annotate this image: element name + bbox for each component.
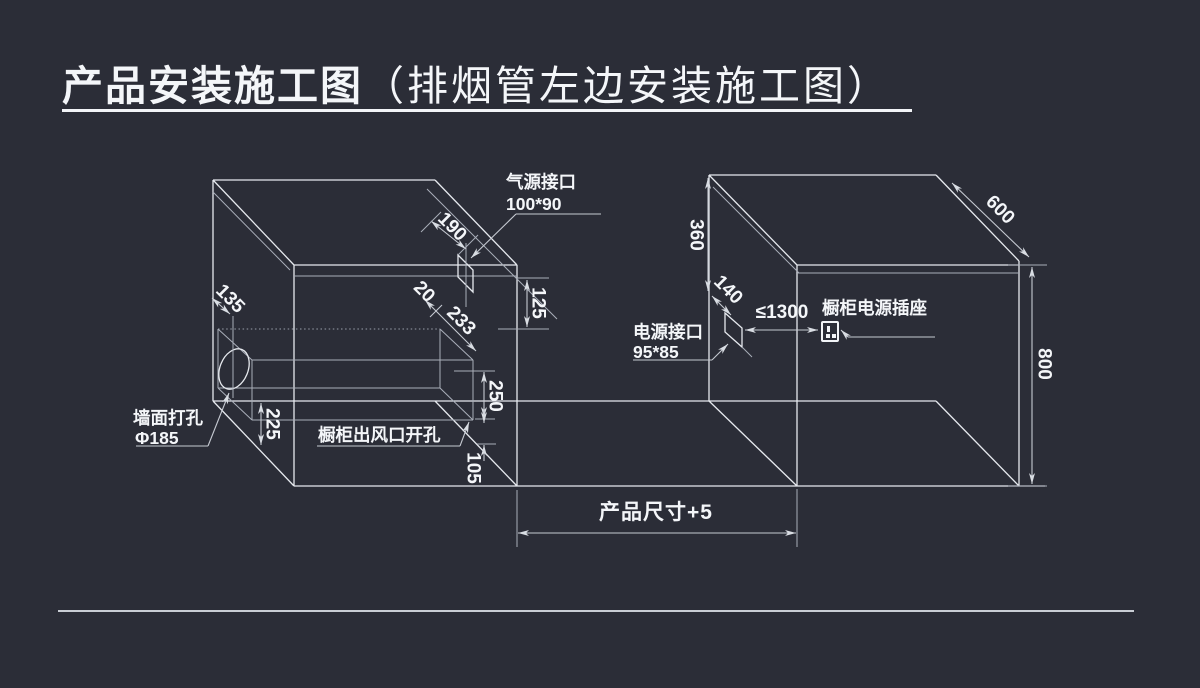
svg-text:20: 20 [409, 277, 439, 307]
svg-text:墙面打孔: 墙面打孔 [133, 408, 203, 428]
dim-225: 225 [261, 403, 283, 445]
right-cabinet-inner-edges [713, 187, 1019, 273]
power-cutout-shape [725, 313, 742, 347]
svg-text:Φ185: Φ185 [135, 428, 179, 448]
svg-text:800: 800 [1034, 348, 1055, 380]
power-socket-icon [822, 322, 838, 341]
power-interface-label: 电源接口 95*85 [633, 322, 728, 362]
svg-text:250: 250 [485, 380, 506, 412]
svg-text:橱柜出风口开孔: 橱柜出风口开孔 [318, 425, 441, 445]
dim-600: 600 [952, 183, 1029, 257]
dim-250: 250 [454, 371, 506, 419]
dim-socket-distance: ≤1300 [745, 302, 818, 330]
power-cutout-extension [742, 347, 752, 357]
svg-text:橱柜电源插座: 橱柜电源插座 [822, 298, 927, 318]
right-cabinet-figure: 360 140 ≤1300 600 800 [633, 175, 1055, 486]
svg-text:225: 225 [262, 408, 283, 440]
svg-text:气源接口: 气源接口 [505, 172, 576, 192]
svg-text:360: 360 [686, 219, 707, 251]
left-cabinet-figure: 135 190 20 233 125 [133, 172, 1045, 486]
svg-text:600: 600 [981, 191, 1018, 228]
svg-text:140: 140 [709, 271, 746, 308]
duct-outline [218, 329, 473, 420]
svg-text:≤1300: ≤1300 [756, 302, 809, 323]
svg-text:105: 105 [463, 452, 484, 484]
dim-360: 360 [686, 178, 709, 291]
svg-text:233: 233 [442, 302, 479, 339]
dim-140: 140 [709, 271, 746, 315]
svg-text:100*90: 100*90 [506, 194, 562, 214]
air-outlet-label: 橱柜出风口开孔 [317, 422, 469, 446]
svg-text:电源接口: 电源接口 [633, 322, 703, 342]
dim-800: 800 [1008, 265, 1055, 486]
svg-text:产品尺寸+5: 产品尺寸+5 [599, 500, 713, 524]
installation-drawing-page: 产品安装施工图（排烟管左边安装施工图） [0, 0, 1200, 688]
gas-interface-label: 气源接口 100*90 [471, 172, 601, 258]
installation-diagram: 135 190 20 233 125 [0, 0, 1200, 688]
svg-text:125: 125 [528, 287, 549, 319]
svg-text:95*85: 95*85 [633, 342, 679, 362]
svg-text:135: 135 [211, 280, 249, 318]
product-size-dimension: 产品尺寸+5 [517, 489, 797, 547]
wall-hole-ellipse [213, 344, 255, 393]
